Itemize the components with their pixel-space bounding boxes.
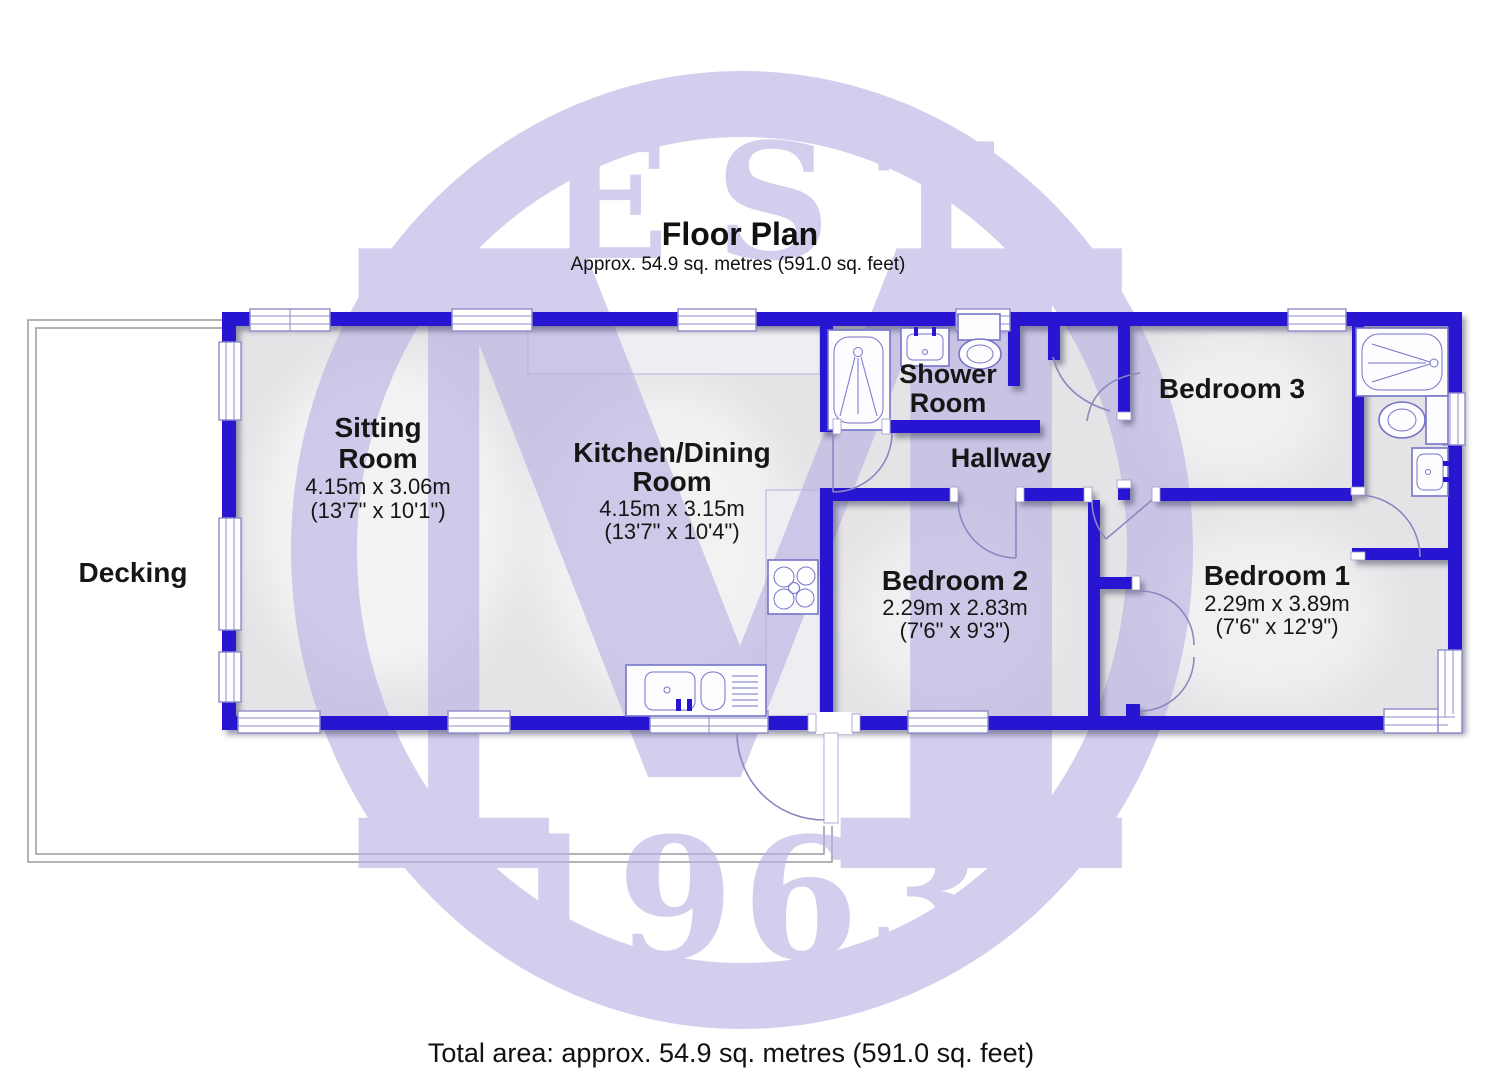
window xyxy=(448,711,510,733)
bedroom-1-dim-imperial: (7'6" x 12'9") xyxy=(1215,614,1338,639)
window xyxy=(238,711,320,733)
watermark-year: 1963 xyxy=(492,800,992,998)
shower-room-label: Shower xyxy=(899,359,997,389)
bedroom-1-dim-metric: 2.29m x 3.89m xyxy=(1204,591,1350,616)
bathtub xyxy=(1356,328,1448,396)
kitchen-dining-label: Kitchen/Dining xyxy=(573,437,771,468)
bedroom-1-label: Bedroom 1 xyxy=(1204,560,1350,591)
shower-room-label-2: Room xyxy=(910,388,987,418)
kitchen-dining-label-2: Room xyxy=(632,466,711,497)
hob xyxy=(768,560,818,614)
sitting-room-label-2: Room xyxy=(338,443,417,474)
decking-label: Decking xyxy=(79,557,188,588)
sitting-room-dim-metric: 4.15m x 3.06m xyxy=(305,474,451,499)
page-subtitle: Approx. 54.9 sq. metres (591.0 sq. feet) xyxy=(571,254,906,276)
window xyxy=(219,342,241,420)
bedroom-2-dim-imperial: (7'6" x 9'3") xyxy=(900,618,1011,643)
bedroom-2-label: Bedroom 2 xyxy=(882,565,1028,596)
page-title: Floor Plan xyxy=(662,216,818,253)
kitchen-door-gap xyxy=(816,712,852,734)
sitting-room-dim-imperial: (13'7" x 10'1") xyxy=(310,498,445,523)
kitchen-dining-dim-metric: 4.15m x 3.15m xyxy=(599,496,745,521)
window xyxy=(452,309,532,331)
window xyxy=(219,652,241,702)
shower-tray xyxy=(828,330,890,430)
window xyxy=(1288,309,1346,331)
hallway-label: Hallway xyxy=(951,443,1052,473)
window xyxy=(678,309,756,331)
total-area-text: Total area: approx. 54.9 sq. metres (591… xyxy=(428,1038,1034,1069)
sitting-room-label: Sitting xyxy=(334,412,421,443)
window xyxy=(250,309,330,331)
bedroom-3-label: Bedroom 3 xyxy=(1159,373,1305,404)
window xyxy=(219,518,241,630)
floor-plan-page: EST. M 1963 xyxy=(0,0,1485,1080)
kitchen-dining-dim-imperial: (13'7" x 10'4") xyxy=(604,519,739,544)
floor-plan-drawing: EST. M 1963 xyxy=(0,0,1485,1080)
window xyxy=(908,711,988,733)
washbasin xyxy=(1412,448,1452,496)
bedroom-2-dim-metric: 2.29m x 2.83m xyxy=(882,595,1028,620)
kitchen-sink xyxy=(626,665,766,716)
